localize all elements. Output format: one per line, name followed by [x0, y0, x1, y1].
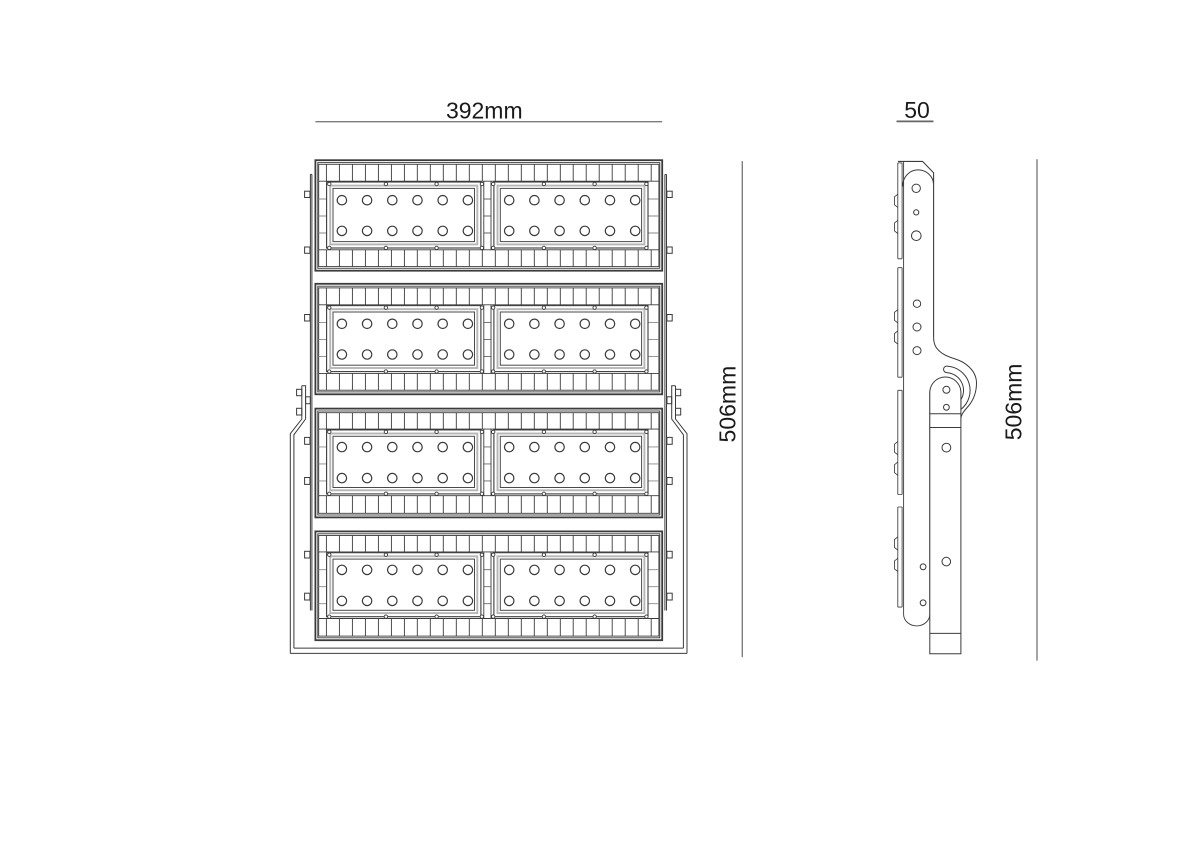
svg-text:506mm: 506mm: [1000, 364, 1026, 441]
svg-text:392mm: 392mm: [446, 98, 523, 124]
svg-text:50: 50: [904, 97, 930, 123]
svg-text:506mm: 506mm: [715, 366, 741, 443]
